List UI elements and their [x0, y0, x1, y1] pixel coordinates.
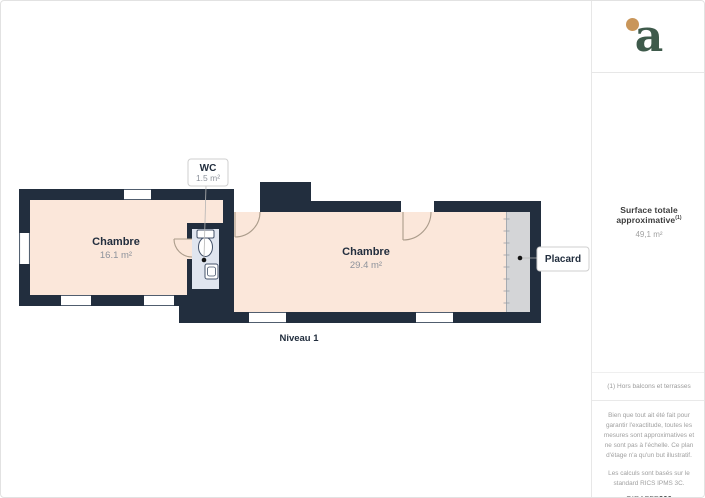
surface-total-block: Surface totale approximative(1) 49,1 m²: [592, 205, 705, 239]
floorplan-svg: WC 1.5 m² Placard Chambre 16.1 m² Chambr…: [1, 1, 591, 498]
logo-box: a: [592, 1, 705, 73]
logo-letter: a: [635, 15, 664, 59]
floorplan-canvas: WC 1.5 m² Placard Chambre 16.1 m² Chambr…: [1, 1, 591, 498]
disclaimer-paragraph-2: Les calculs sont basés sur le standard R…: [602, 469, 696, 489]
toilet-icon: [197, 230, 214, 257]
wc-area-label: 1.5 m²: [196, 173, 220, 183]
wc-label-box: WC 1.5 m²: [188, 159, 228, 186]
logo-dot-icon: [626, 18, 639, 31]
room1-name-label: Chambre: [92, 236, 140, 248]
room1-area-label: 16.1 m²: [100, 250, 132, 261]
surface-total-title-text: Surface totale approximative: [616, 205, 678, 225]
surface-total-title: Surface totale approximative(1): [592, 205, 705, 225]
surface-note-ref: (1): [675, 215, 681, 221]
window: [124, 189, 151, 200]
window: [144, 295, 174, 306]
level-label: Niveau 1: [279, 333, 319, 344]
disclaimer-paragraph-1: Bien que tout ait été fait pour garantir…: [602, 411, 696, 461]
info-sidebar: a Surface totale approximative(1) 49,1 m…: [591, 1, 705, 498]
surface-total-value: 49,1 m²: [592, 230, 705, 239]
placard-label-box: Placard: [537, 247, 589, 271]
placard-floor: [506, 212, 530, 312]
window: [61, 295, 91, 306]
room2-name-label: Chambre: [342, 246, 390, 258]
footnote-strip: (1) Hors balcons et terrasses: [592, 372, 705, 401]
disclaimer-block: Bien que tout ait été fait pour garantir…: [592, 401, 705, 498]
agency-logo: a: [635, 15, 664, 59]
window: [249, 312, 286, 323]
window: [19, 233, 30, 264]
window: [416, 312, 453, 323]
floorplan-page: WC 1.5 m² Placard Chambre 16.1 m² Chambr…: [0, 0, 705, 498]
sink-icon: [205, 264, 218, 279]
room2-area-label: 29.4 m²: [350, 260, 382, 271]
placard-label: Placard: [545, 254, 581, 265]
footnote-text: (1) Hors balcons et terrasses: [607, 383, 690, 390]
